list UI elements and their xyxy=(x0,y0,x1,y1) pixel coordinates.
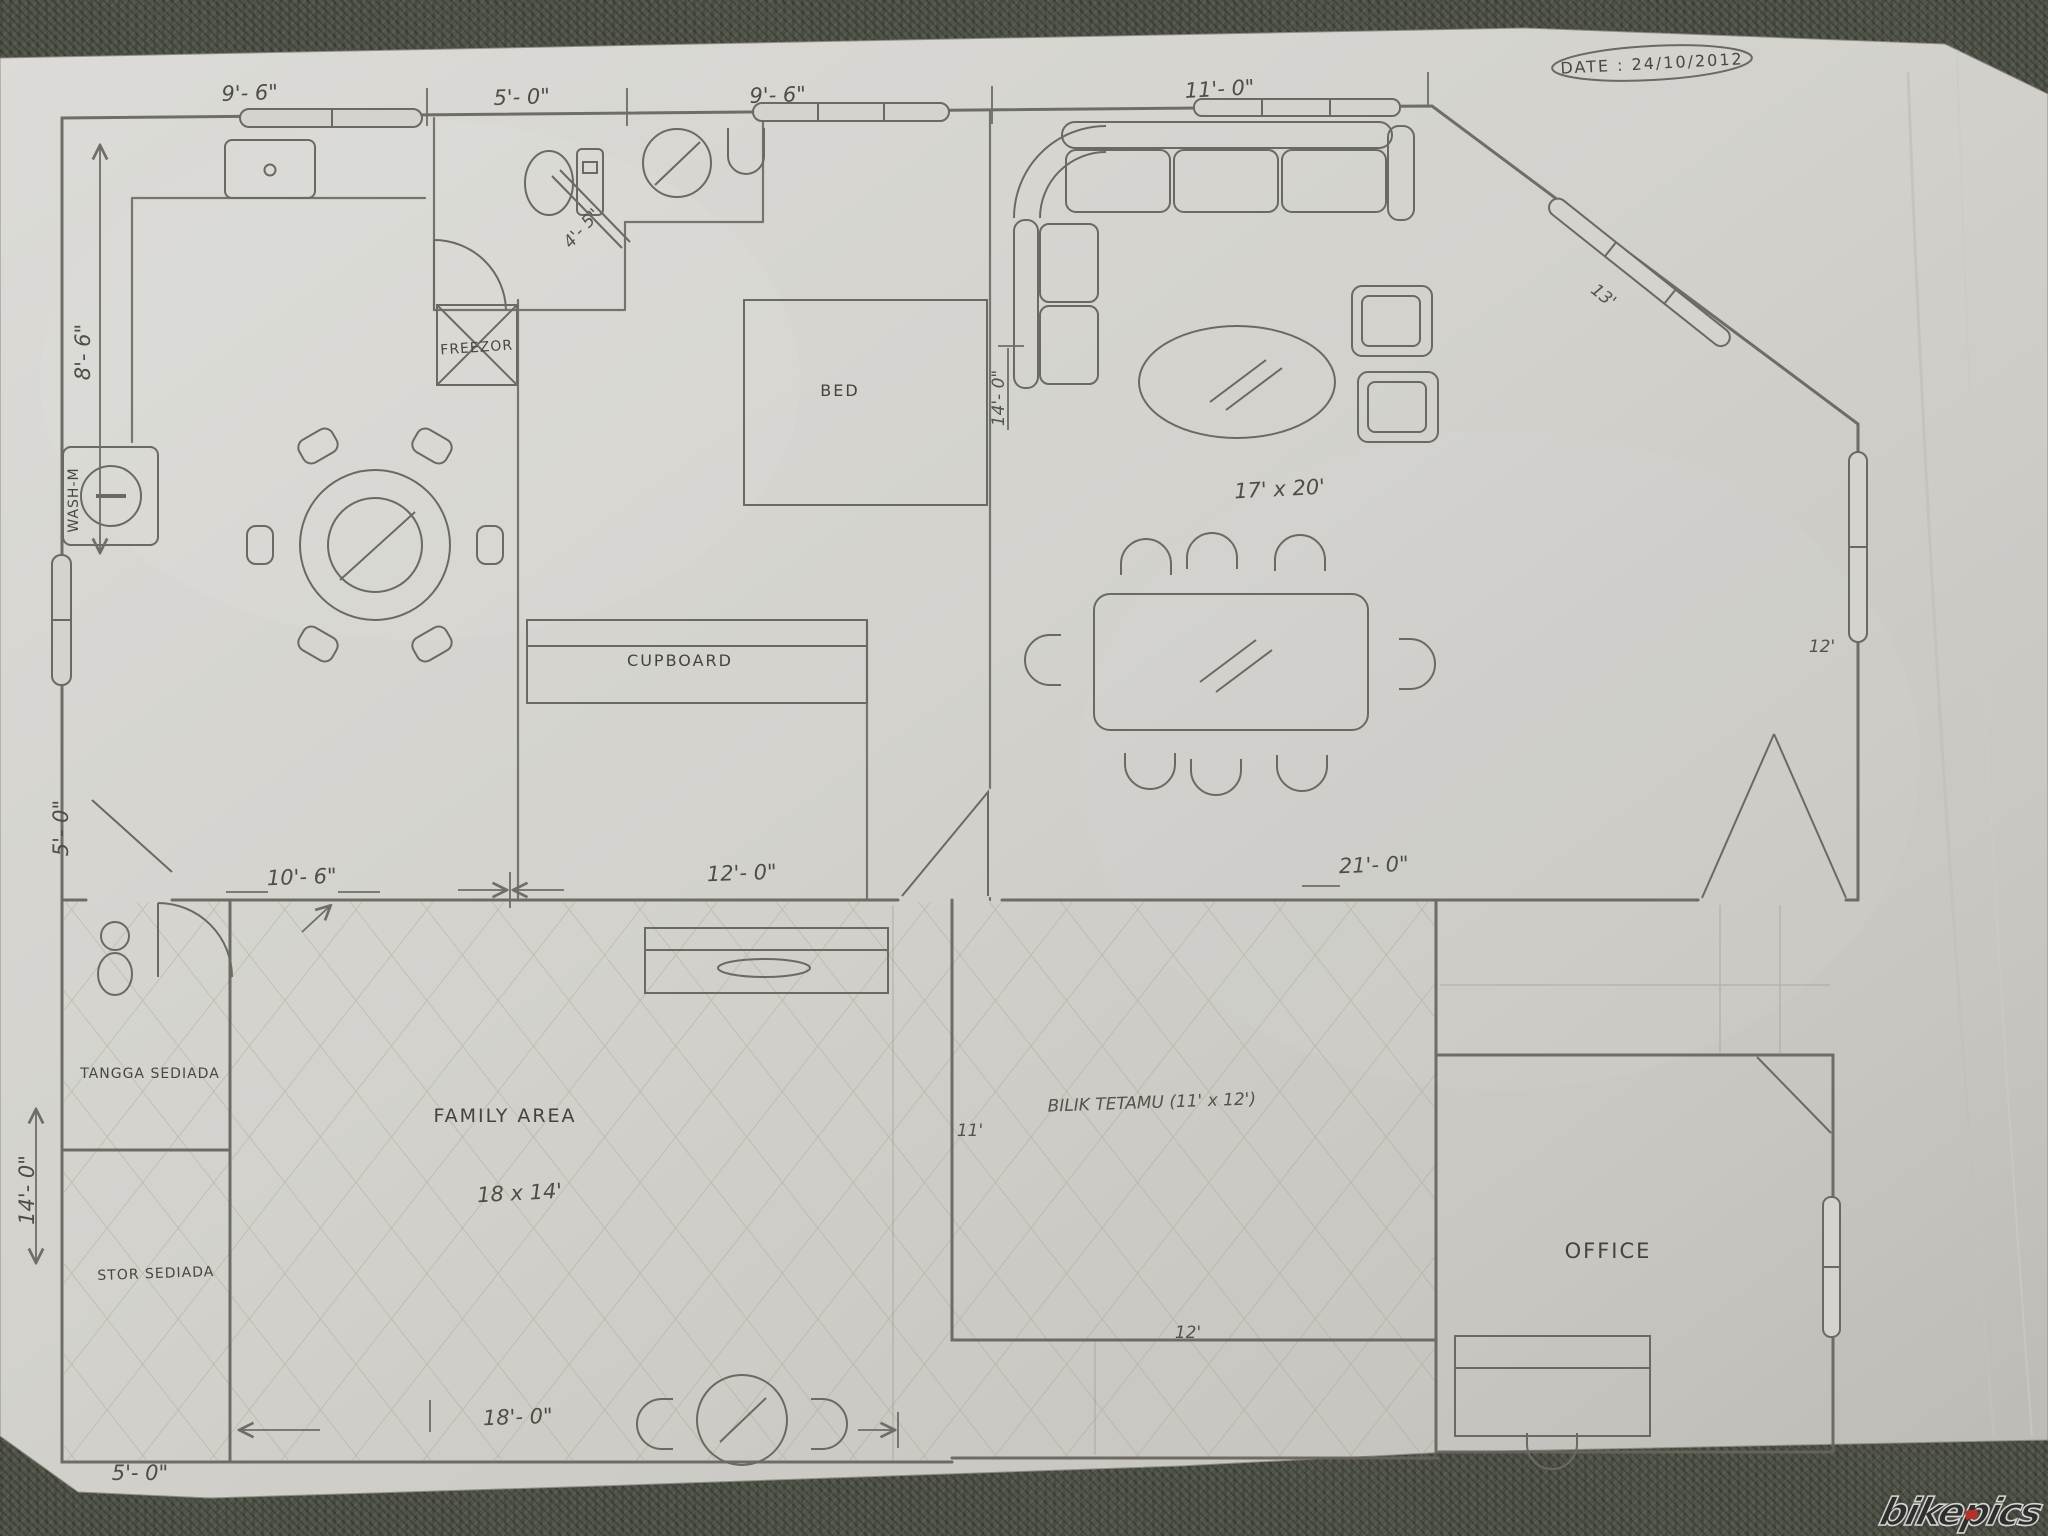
label-family-size: 18 x 14' xyxy=(477,1179,563,1207)
label-cupboard: CUPBOARD xyxy=(627,651,733,670)
dim-top-4: 11'- 0" xyxy=(1184,75,1255,103)
dim-lower-bottom-left: 5'- 0" xyxy=(112,1461,168,1485)
dim-bed-wall: 14'- 0" xyxy=(989,370,1009,426)
bikepics-watermark: bikepics xyxy=(1875,1490,2045,1534)
dim-mid-3: 21'- 0" xyxy=(1338,852,1409,878)
photo-of-floorplan: DATE : 24/10/2012 xyxy=(0,0,2048,1536)
dim-left-height: 8'- 6" xyxy=(71,324,95,380)
label-office: OFFICE xyxy=(1565,1239,1652,1263)
dim-top-1: 9'- 6" xyxy=(221,80,278,106)
dim-mid-2: 12'- 0" xyxy=(706,860,777,886)
watermark-red-accent xyxy=(1965,1509,1978,1520)
label-bed: BED xyxy=(820,381,859,400)
dim-top-3: 9'- 6" xyxy=(749,82,806,108)
dim-lower-left-height: 14'- 0" xyxy=(15,1155,39,1225)
dim-guest-bottom: 12' xyxy=(1175,1323,1201,1343)
watermark-text: bikepics xyxy=(1875,1490,2045,1534)
label-washing-machine: WASH-M xyxy=(66,467,82,532)
dim-lower-bottom: 18'- 0" xyxy=(482,1404,553,1430)
label-living-size: 17' x 20' xyxy=(1234,475,1326,504)
dim-left-door: 5'- 0" xyxy=(49,800,73,856)
dim-guest-left: 11' xyxy=(957,1121,983,1141)
dim-top-2: 5'- 0" xyxy=(493,84,550,110)
label-family-area: FAMILY AREA xyxy=(433,1105,576,1127)
dim-right-window: 12' xyxy=(1809,637,1835,657)
floorplan-sketch: DATE : 24/10/2012 xyxy=(0,0,2048,1536)
dim-mid-1: 10'- 6" xyxy=(266,864,337,890)
label-stairs-room: TANGGA SEDIADA xyxy=(79,1066,220,1082)
